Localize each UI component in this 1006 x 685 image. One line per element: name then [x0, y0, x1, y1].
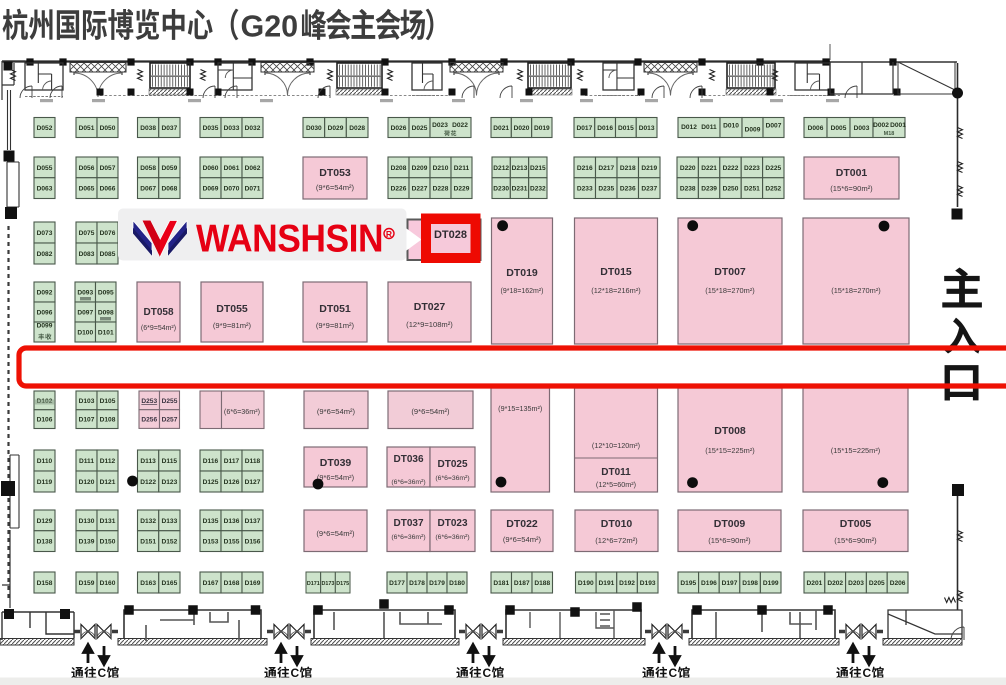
svg-text:D062: D062: [245, 165, 261, 172]
svg-text:D221: D221: [701, 165, 717, 172]
svg-text:(6*9=54m²): (6*9=54m²): [141, 325, 176, 332]
svg-text:D210: D210: [433, 165, 449, 172]
svg-text:D255: D255: [162, 398, 178, 405]
svg-text:D002: D002: [873, 122, 889, 129]
svg-text:DT039: DT039: [320, 457, 352, 469]
svg-text:D230: D230: [493, 186, 509, 193]
svg-text:(15*6=90m²): (15*6=90m²): [830, 184, 873, 193]
svg-text:D195: D195: [680, 580, 696, 587]
svg-text:D105: D105: [100, 398, 116, 405]
svg-text:D257: D257: [162, 417, 178, 424]
svg-text:D169: D169: [245, 580, 261, 587]
svg-text:D256: D256: [141, 417, 157, 424]
svg-text:D063: D063: [37, 186, 53, 193]
svg-text:D066: D066: [100, 186, 116, 193]
svg-text:D068: D068: [161, 186, 177, 193]
svg-text:(12*6=72m²): (12*6=72m²): [595, 536, 638, 545]
svg-text:DT025: DT025: [437, 459, 467, 470]
svg-text:D180: D180: [449, 580, 465, 587]
svg-text:(9*6=54m²): (9*6=54m²): [317, 473, 354, 482]
svg-text:D188: D188: [534, 580, 550, 587]
svg-text:D119: D119: [37, 479, 53, 486]
svg-text:(6*6=36m²): (6*6=36m²): [391, 534, 425, 541]
svg-text:D038: D038: [140, 125, 156, 132]
svg-text:D007: D007: [766, 123, 782, 130]
svg-text:D021: D021: [493, 125, 509, 132]
svg-text:D205: D205: [869, 580, 885, 587]
svg-text:DT005: DT005: [840, 518, 872, 530]
svg-text:D156: D156: [245, 539, 261, 546]
svg-text:D153: D153: [203, 539, 219, 546]
svg-text:D107: D107: [79, 417, 95, 424]
svg-text:D075: D075: [79, 230, 95, 237]
svg-text:D030: D030: [306, 125, 322, 132]
svg-text:D101: D101: [98, 329, 114, 336]
svg-text:D220: D220: [680, 165, 696, 172]
svg-text:D005: D005: [831, 125, 847, 132]
svg-text:D037: D037: [161, 125, 177, 132]
svg-text:D193: D193: [640, 580, 656, 587]
svg-text:(6*6=36m²): (6*6=36m²): [224, 407, 260, 416]
svg-text:D250: D250: [723, 186, 739, 193]
svg-text:D112: D112: [100, 458, 116, 465]
svg-text:D067: D067: [140, 186, 156, 193]
svg-text:D050: D050: [100, 125, 116, 132]
svg-text:DT001: DT001: [836, 167, 868, 179]
svg-text:D009: D009: [745, 127, 761, 134]
svg-text:D179: D179: [429, 580, 445, 587]
svg-text:(15*6=90m²): (15*6=90m²): [708, 536, 751, 545]
svg-text:D151: D151: [140, 539, 156, 546]
svg-text:(15*18=270m²): (15*18=270m²): [831, 286, 881, 295]
svg-text:D181: D181: [493, 580, 509, 587]
svg-text:D253: D253: [141, 398, 157, 405]
svg-text:(9*6=54m²): (9*6=54m²): [317, 407, 356, 416]
svg-text:DT023: DT023: [437, 518, 467, 529]
svg-text:D209: D209: [412, 165, 428, 172]
svg-text:D159: D159: [79, 580, 95, 587]
svg-text:D132: D132: [140, 518, 156, 525]
svg-text:D023: D023: [432, 122, 448, 129]
svg-text:(12*9=108m²): (12*9=108m²): [406, 320, 453, 329]
svg-text:D070: D070: [224, 186, 240, 193]
svg-text:D093: D093: [77, 289, 93, 296]
svg-text:DT028: DT028: [434, 229, 467, 241]
svg-text:D116: D116: [203, 458, 219, 465]
svg-text:D052: D052: [37, 125, 53, 132]
svg-text:(12*5=60m²): (12*5=60m²): [596, 480, 636, 489]
svg-text:DT051: DT051: [319, 303, 351, 315]
svg-text:D025: D025: [412, 125, 428, 132]
svg-text:D187: D187: [514, 580, 530, 587]
svg-text:D217: D217: [598, 165, 614, 172]
svg-text:D013: D013: [639, 125, 655, 132]
svg-text:D103: D103: [79, 398, 95, 405]
svg-text:(9*9=81m²): (9*9=81m²): [213, 321, 252, 330]
svg-text:D118: D118: [245, 458, 261, 465]
svg-text:D122: D122: [140, 479, 156, 486]
svg-text:DT011: DT011: [601, 467, 631, 478]
svg-text:D019: D019: [534, 125, 550, 132]
svg-text:D006: D006: [808, 125, 824, 132]
svg-text:(9*6=54m²): (9*6=54m²): [316, 183, 355, 192]
svg-text:D227: D227: [412, 186, 428, 193]
svg-text:DT036: DT036: [393, 454, 423, 465]
svg-text:D133: D133: [161, 518, 177, 525]
svg-text:(9*6=54m²): (9*6=54m²): [503, 535, 542, 544]
svg-text:D228: D228: [433, 186, 449, 193]
svg-text:DT055: DT055: [216, 303, 248, 315]
svg-text:D191: D191: [599, 580, 615, 587]
svg-text:D238: D238: [680, 186, 696, 193]
svg-text:D073: D073: [37, 230, 53, 237]
svg-text:D051: D051: [79, 125, 95, 132]
svg-text:D108: D108: [100, 417, 116, 424]
svg-text:D202: D202: [827, 580, 843, 587]
svg-text:(9*18=162m²): (9*18=162m²): [501, 288, 544, 295]
svg-text:D016: D016: [597, 125, 613, 132]
svg-text:D106: D106: [37, 417, 53, 424]
svg-text:D092: D092: [37, 289, 53, 296]
svg-text:D139: D139: [79, 539, 95, 546]
svg-text:D229: D229: [454, 186, 470, 193]
svg-text:D135: D135: [203, 518, 219, 525]
svg-text:D160: D160: [100, 580, 116, 587]
svg-text:DT010: DT010: [601, 518, 633, 530]
svg-text:DT022: DT022: [506, 518, 538, 530]
svg-text:D222: D222: [723, 165, 739, 172]
svg-text:D215: D215: [530, 165, 546, 172]
svg-text:D028: D028: [349, 125, 365, 132]
svg-text:D226: D226: [391, 186, 407, 193]
svg-text:D173: D173: [322, 581, 335, 587]
svg-text:(15*15=225m²): (15*15=225m²): [831, 446, 881, 455]
svg-text:D196: D196: [701, 580, 717, 587]
svg-text:D203: D203: [848, 580, 864, 587]
svg-text:G20: G20: [241, 10, 299, 44]
svg-text:D069: D069: [203, 186, 219, 193]
svg-text:D211: D211: [454, 165, 470, 172]
svg-text:D010: D010: [723, 123, 739, 130]
svg-text:D163: D163: [140, 580, 156, 587]
svg-text:D017: D017: [576, 125, 592, 132]
svg-text:D167: D167: [203, 580, 219, 587]
svg-text:M18: M18: [884, 131, 895, 137]
svg-text:(9*9=81m²): (9*9=81m²): [316, 321, 355, 330]
svg-text:(6*6=36m²): (6*6=36m²): [391, 479, 425, 486]
svg-text:D015: D015: [618, 125, 634, 132]
svg-text:D223: D223: [744, 165, 760, 172]
svg-text:(9*15=135m²): (9*15=135m²): [498, 404, 542, 413]
svg-text:D121: D121: [100, 479, 116, 486]
svg-text:D097: D097: [77, 309, 93, 316]
svg-text:D120: D120: [79, 479, 95, 486]
svg-text:D131: D131: [100, 518, 116, 525]
svg-text:D216: D216: [577, 165, 593, 172]
svg-text:D115: D115: [162, 458, 178, 465]
svg-text:DT007: DT007: [714, 266, 746, 278]
svg-text:D055: D055: [37, 165, 53, 172]
svg-text:D125: D125: [203, 479, 219, 486]
svg-text:D033: D033: [224, 125, 240, 132]
svg-text:DT019: DT019: [506, 267, 538, 279]
svg-text:D012: D012: [681, 124, 697, 131]
svg-text:D171: D171: [307, 581, 320, 587]
svg-text:D111: D111: [79, 458, 94, 465]
svg-text:D100: D100: [77, 329, 93, 336]
svg-text:D123: D123: [161, 479, 177, 486]
svg-text:D082: D082: [37, 251, 53, 258]
svg-text:D158: D158: [37, 580, 53, 587]
svg-text:D029: D029: [328, 125, 344, 132]
svg-text:D127: D127: [245, 479, 261, 486]
svg-text:D165: D165: [161, 580, 177, 587]
svg-text:D126: D126: [224, 479, 240, 486]
svg-text:(15*15=225m²): (15*15=225m²): [705, 446, 755, 455]
svg-text:(9*6=54m²): (9*6=54m²): [316, 529, 355, 538]
svg-text:D218: D218: [620, 165, 636, 172]
svg-text:D155: D155: [224, 539, 240, 546]
svg-text:D099: D099: [37, 323, 53, 330]
svg-text:D095: D095: [98, 289, 114, 296]
svg-text:D192: D192: [619, 580, 635, 587]
svg-text:D096: D096: [37, 309, 53, 316]
svg-text:D212: D212: [493, 165, 509, 172]
svg-text:D231: D231: [512, 186, 528, 193]
svg-text:D225: D225: [765, 165, 781, 172]
svg-text:D057: D057: [100, 165, 116, 172]
svg-text:R: R: [386, 229, 392, 239]
svg-text:D110: D110: [37, 458, 53, 465]
svg-text:D190: D190: [578, 580, 594, 587]
svg-text:D026: D026: [391, 125, 407, 132]
svg-text:DT053: DT053: [319, 167, 351, 179]
svg-text:D206: D206: [890, 580, 906, 587]
svg-text:D233: D233: [577, 186, 593, 193]
svg-text:(15*6=90m²): (15*6=90m²): [834, 536, 877, 545]
svg-text:(15*18=270m²): (15*18=270m²): [705, 286, 755, 295]
svg-text:D208: D208: [391, 165, 407, 172]
svg-text:D178: D178: [409, 580, 425, 587]
svg-text:(9*6=54m²): (9*6=54m²): [411, 407, 450, 416]
svg-text:DT009: DT009: [714, 518, 746, 530]
svg-text:D219: D219: [641, 165, 657, 172]
svg-text:(12*10=120m²): (12*10=120m²): [592, 441, 640, 450]
svg-text:D175: D175: [336, 581, 349, 587]
svg-text:D198: D198: [742, 580, 758, 587]
svg-text:D085: D085: [100, 251, 116, 258]
svg-text:D129: D129: [37, 518, 53, 525]
svg-text:DT008: DT008: [714, 425, 746, 437]
svg-text:(12*18=216m²): (12*18=216m²): [591, 286, 641, 295]
svg-text:D239: D239: [701, 186, 717, 193]
svg-text:D065: D065: [79, 186, 95, 193]
svg-text:D060: D060: [203, 165, 219, 172]
svg-text:D237: D237: [641, 186, 657, 193]
svg-text:D236: D236: [620, 186, 636, 193]
svg-text:DT027: DT027: [414, 301, 446, 313]
svg-text:D168: D168: [224, 580, 240, 587]
svg-text:D213: D213: [512, 165, 528, 172]
svg-text:D071: D071: [245, 186, 261, 193]
svg-text:D235: D235: [598, 186, 614, 193]
svg-text:D076: D076: [100, 230, 116, 237]
svg-text:D199: D199: [763, 580, 779, 587]
svg-text:D117: D117: [224, 458, 240, 465]
svg-text:D056: D056: [79, 165, 95, 172]
svg-text:D137: D137: [245, 518, 261, 525]
svg-text:D113: D113: [140, 458, 156, 465]
svg-text:D022: D022: [452, 122, 468, 129]
svg-text:D251: D251: [744, 186, 760, 193]
svg-text:D232: D232: [530, 186, 546, 193]
svg-text:D061: D061: [224, 165, 240, 172]
svg-text:D003: D003: [854, 125, 870, 132]
svg-text:D020: D020: [514, 125, 530, 132]
svg-text:WANSHSIN: WANSHSIN: [196, 217, 383, 260]
svg-text:D197: D197: [722, 580, 738, 587]
svg-text:D201: D201: [807, 580, 823, 587]
svg-text:DT037: DT037: [393, 518, 423, 529]
svg-text:D001: D001: [890, 122, 906, 129]
svg-text:D098: D098: [98, 309, 114, 316]
svg-text:D011: D011: [701, 124, 717, 131]
svg-text:D035: D035: [203, 125, 219, 132]
svg-text:DT058: DT058: [143, 307, 173, 318]
svg-text:(6*6=36m²): (6*6=36m²): [435, 475, 469, 482]
svg-text:D152: D152: [161, 539, 177, 546]
svg-text:D083: D083: [79, 251, 95, 258]
svg-text:D130: D130: [79, 518, 95, 525]
svg-text:D059: D059: [161, 165, 177, 172]
svg-text:D252: D252: [765, 186, 781, 193]
svg-text:D032: D032: [245, 125, 261, 132]
svg-text:D058: D058: [140, 165, 156, 172]
svg-text:D177: D177: [389, 580, 405, 587]
svg-text:D150: D150: [100, 539, 116, 546]
svg-text:D138: D138: [37, 539, 53, 546]
svg-text:DT015: DT015: [600, 266, 632, 278]
svg-text:(6*6=36m²): (6*6=36m²): [435, 534, 469, 541]
svg-text:D136: D136: [224, 518, 240, 525]
